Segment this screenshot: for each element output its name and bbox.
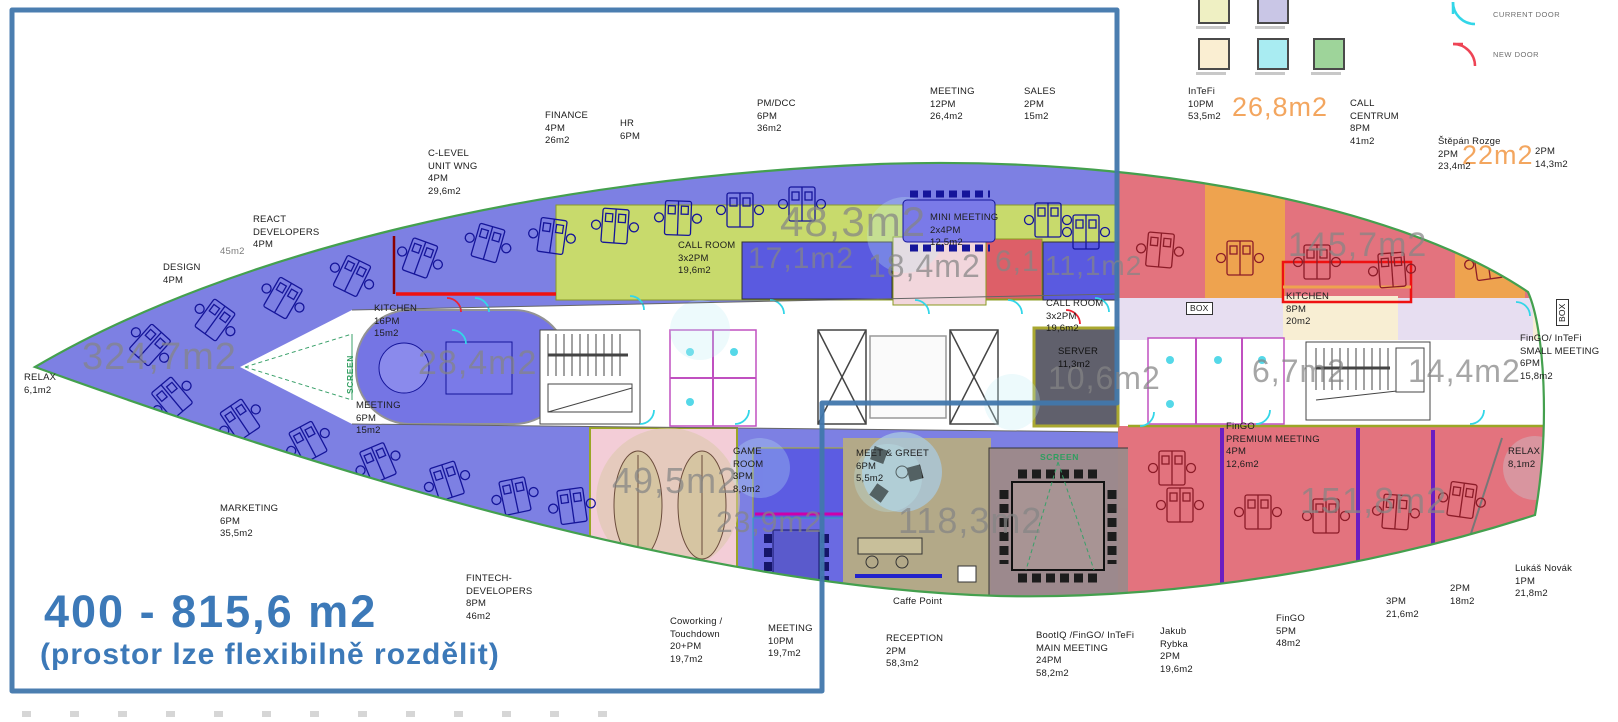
area-call-d: 11,1m2 (1045, 250, 1142, 282)
area-kitchen-zone: 48,3m2 (780, 198, 926, 246)
room-label-callroom-right: CALL ROOM 3x2PM 19,6m2 (1046, 298, 1103, 336)
area-oval-meeting: 28,4m2 (418, 344, 537, 383)
legend-swatch-label (1196, 26, 1226, 29)
legend-swatch-label (1255, 26, 1285, 29)
room-label-kitchen-left: KITCHEN 16PM 15m2 (374, 303, 417, 341)
room-label-reception: RECEPTION 2PM 58,3m2 (886, 633, 943, 671)
area-call-centrum: 145,7m2 (1288, 226, 1427, 265)
current-door-icon (1448, 0, 1482, 30)
legend-swatch-3 (1198, 38, 1230, 70)
room-label-server: SERVER 11,3m2 (1058, 346, 1098, 371)
area-call-a: 17,1m2 (748, 242, 854, 276)
room-label-relax-left: RELAX 6,1m2 (24, 372, 56, 397)
elevators (818, 330, 998, 424)
box-label-right: BOX (1556, 299, 1569, 326)
room-label-mainmeeting: BootIQ /FinGO/ InTeFi MAIN MEETING 24PM … (1036, 630, 1134, 680)
room-label-callcentrum: CALL CENTRUM 8PM 41m2 (1350, 98, 1399, 148)
room-label-clevel: C-LEVEL UNIT WNG 4PM 29,6m2 (428, 148, 477, 198)
room-label-pm3: 3PM 21,6m2 (1386, 596, 1419, 621)
zone-orange-a (1205, 150, 1285, 322)
room-label-kitchen-right: KITCHEN 8PM 20m2 (1286, 291, 1329, 329)
room-label-pmdcc: PM/DCC 6PM 36m2 (757, 98, 796, 136)
legend-swatch-1 (1198, 0, 1230, 24)
zone-orange-b (1455, 150, 1525, 322)
room-label-meeting6: MEETING 6PM 15m2 (356, 400, 401, 438)
room-label-callroom-left: CALL ROOM 3x2PM 19,6m2 (678, 240, 735, 278)
room-label-pm2-bottom: 2PM 18m2 (1450, 583, 1475, 608)
room-label-lukas: Lukáš Novák 1PM 21,8m2 (1515, 563, 1572, 601)
room-label-meetgreet: MEET & GREET 6PM 5,5m2 (856, 448, 929, 486)
area-coworking: 49,5m2 (612, 460, 738, 502)
room-label-meeting10: MEETING 10PM 19,7m2 (768, 623, 813, 661)
flexible-area-subtitle: (prostor lze flexibilně rozdělit) (40, 638, 500, 672)
page-edge-dashes (22, 711, 632, 717)
current-door-label: CURRENT DOOR (1493, 10, 1560, 19)
area-meeting10: 23,9m2 (716, 506, 822, 540)
room-label-intefi10: InTeFi 10PM 53,5m2 (1188, 86, 1221, 124)
area-blue-zone: 324,7m2 (82, 336, 237, 379)
box-label-left: BOX (1186, 302, 1213, 315)
room-label-finance: FINANCE 4PM 26m2 (545, 110, 588, 148)
room-label-gameroom: GAME ROOM 3PM 8,9m2 (733, 446, 763, 496)
area-intefi: 26,8m2 (1232, 92, 1328, 123)
room-label-meeting12: MEETING 12PM 26,4m2 (930, 86, 975, 124)
room-label-caffe: Caffe Point (893, 596, 942, 609)
room-label-fingo5: FinGO 5PM 48m2 (1276, 613, 1305, 651)
room-label-fingo-small: FinGO/ InTeFi SMALL MEETING 6PM 15,8m2 (1520, 333, 1599, 383)
caffe-cabinet (958, 566, 976, 582)
legend-swatch-label (1255, 72, 1285, 75)
area-stair-left: 6,7m2 (1252, 353, 1346, 390)
legend-swatch-label (1311, 72, 1341, 75)
room-label-marketing: MARKETING 6PM 35,5m2 (220, 503, 278, 541)
area-reception: 118,3m2 (898, 500, 1042, 542)
area-call-b: 18,4m2 (868, 248, 981, 285)
room-label-design: DESIGN 4PM (163, 262, 201, 287)
new-door-label: NEW DOOR (1493, 50, 1539, 59)
room-label-fingo-premium: FinGO PREMIUM MEETING 4PM 12,6m2 (1226, 421, 1320, 471)
room-label-relax-right: RELAX 8,1m2 (1508, 446, 1540, 471)
legend-swatch-4 (1257, 38, 1289, 70)
room-label-minimeeting: MINI MEETING 2x4PM 12,5m2 (930, 212, 998, 250)
floor-plan-page: FINANCE 4PM 26m2 HR 6PM C-LEVEL UNIT WNG… (0, 0, 1618, 722)
new-door-icon (1448, 40, 1482, 70)
screen-label-right: SCREEN (1040, 452, 1079, 463)
legend-swatch-2 (1257, 0, 1289, 24)
area-label-45: 45m2 (220, 246, 245, 259)
flexible-area-title: 400 - 815,6 m2 (44, 586, 377, 638)
room-label-react: REACT DEVELOPERS 4PM (253, 214, 319, 252)
room-label-sales: SALES 2PM 15m2 (1024, 86, 1056, 124)
legend-swatch-label (1196, 72, 1226, 75)
room-label-jakub: Jakub Rybka 2PM 19,6m2 (1160, 626, 1193, 676)
area-stair-right: 14,4m2 (1408, 353, 1521, 390)
area-fingo: 151,8m2 (1300, 480, 1447, 522)
room-label-pm2-top: 2PM 14,3m2 (1535, 146, 1568, 171)
room-label-stepan: Štěpán Rozge 2PM 23,4m2 (1438, 136, 1501, 174)
screen-label-left: SCREEN (345, 355, 356, 394)
legend-swatch-5 (1313, 38, 1345, 70)
room-label-fintech: FINTECH- DEVELOPERS 8PM 46m2 (466, 573, 532, 623)
area-call-c: 6,1 (995, 245, 1040, 279)
room-label-coworking: Coworking / Touchdown 20+PM 19,7m2 (670, 616, 722, 666)
room-label-hr: HR 6PM (620, 118, 640, 143)
stairs-left (540, 330, 640, 424)
